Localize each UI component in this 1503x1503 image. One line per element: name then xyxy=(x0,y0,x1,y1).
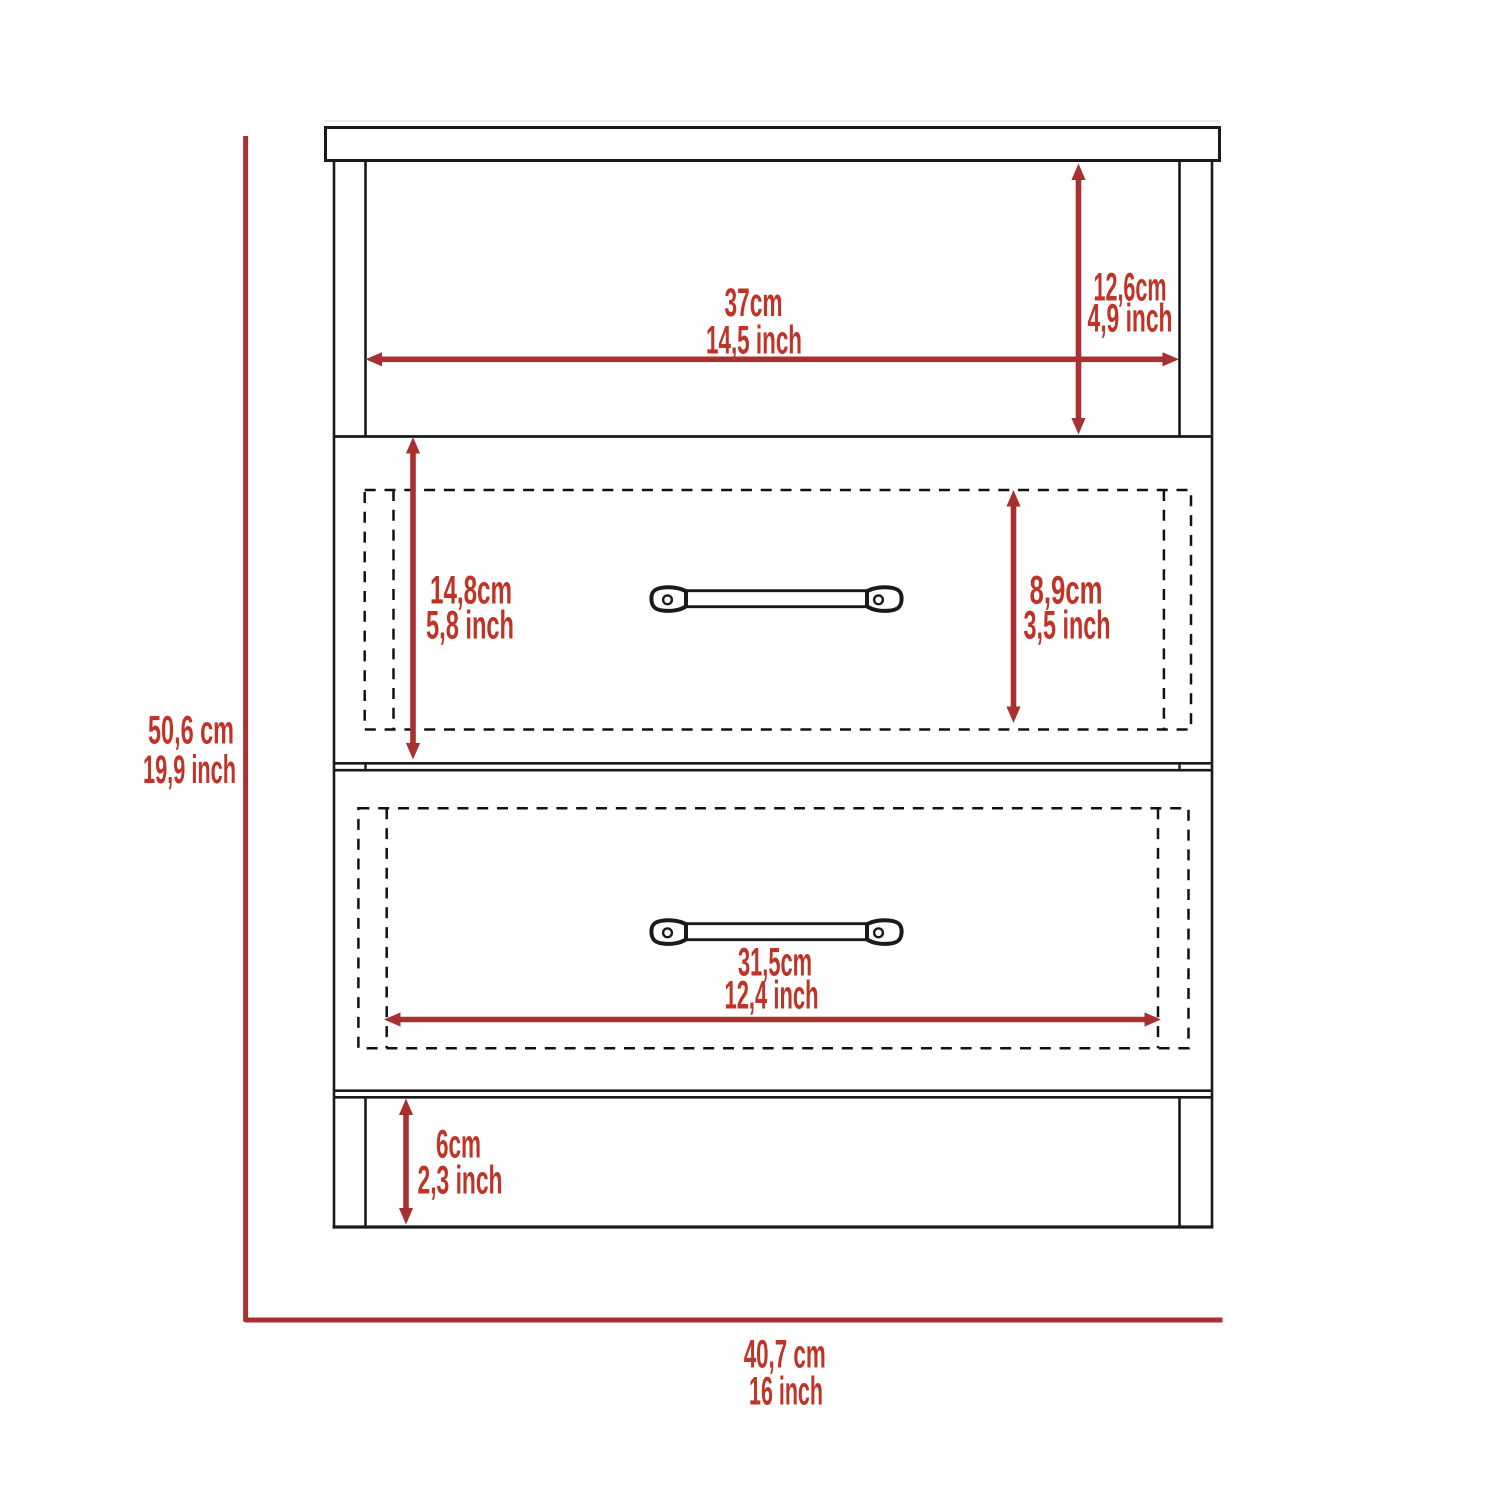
svg-text:3,5 inch: 3,5 inch xyxy=(1024,604,1111,648)
svg-text:50,6 cm: 50,6 cm xyxy=(148,709,234,753)
svg-text:4,9 inch: 4,9 inch xyxy=(1088,297,1173,341)
svg-text:14,5 inch: 14,5 inch xyxy=(706,319,802,363)
svg-text:5,8 inch: 5,8 inch xyxy=(426,604,514,648)
svg-text:12,4 inch: 12,4 inch xyxy=(725,974,819,1018)
svg-text:19,9 inch: 19,9 inch xyxy=(143,748,236,792)
svg-text:16 inch: 16 inch xyxy=(749,1370,823,1414)
svg-text:2,3 inch: 2,3 inch xyxy=(418,1159,503,1203)
